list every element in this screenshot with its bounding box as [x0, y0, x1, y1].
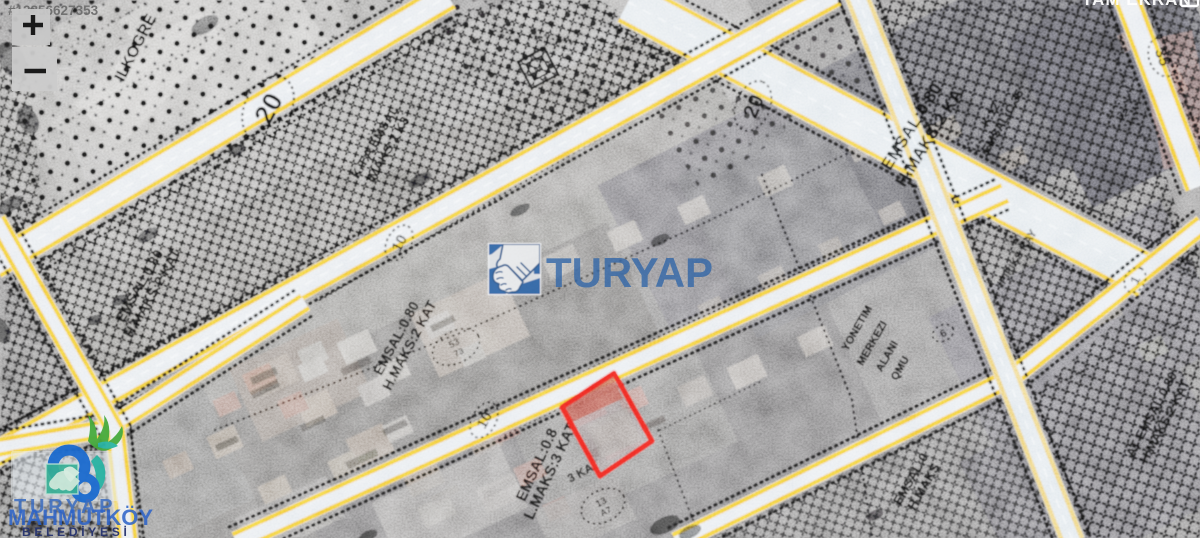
svg-text:TAM EKRAN: TAM EKRAN	[1082, 0, 1192, 9]
svg-text:BELEDİYESİ: BELEDİYESİ	[22, 524, 130, 538]
svg-text:TURYAP: TURYAP	[546, 249, 712, 296]
